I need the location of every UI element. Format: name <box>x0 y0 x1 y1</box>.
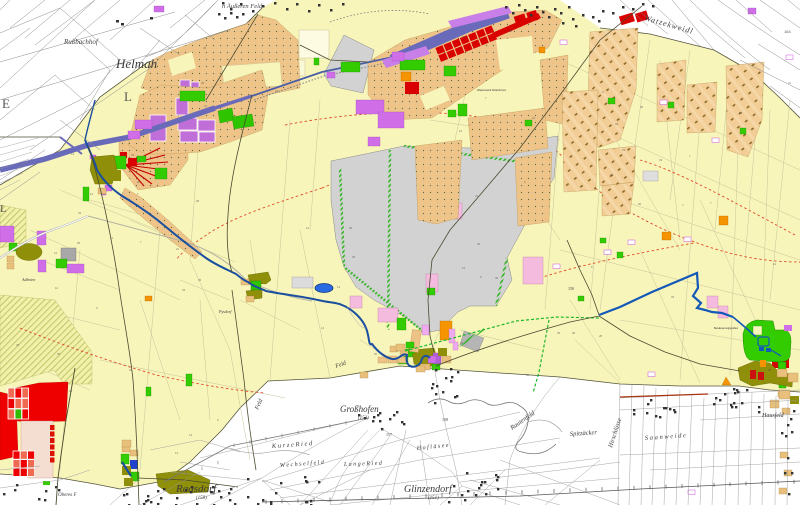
svg-text:21: 21 <box>459 129 463 133</box>
svg-text:35: 35 <box>638 202 642 206</box>
svg-text:Bewässerungsgraben: Bewässerungsgraben <box>714 327 739 330</box>
svg-text:28: 28 <box>599 334 603 338</box>
svg-text:(152): (152) <box>358 416 369 421</box>
svg-text:Raasdorf: Raasdorf <box>175 483 218 495</box>
svg-text:12: 12 <box>773 262 777 266</box>
svg-text:33: 33 <box>659 158 663 162</box>
svg-text:28: 28 <box>509 29 513 33</box>
svg-text:14: 14 <box>71 152 75 156</box>
svg-text:35: 35 <box>201 81 205 85</box>
svg-text:14: 14 <box>275 89 279 93</box>
svg-text:35: 35 <box>77 241 81 245</box>
svg-text:L: L <box>124 89 132 104</box>
svg-text:35: 35 <box>477 242 481 246</box>
svg-text:33: 33 <box>129 368 133 372</box>
svg-text:35: 35 <box>374 352 378 356</box>
svg-text:14: 14 <box>739 111 743 115</box>
svg-text:33: 33 <box>203 46 207 50</box>
svg-text:14: 14 <box>175 451 179 455</box>
svg-text:33: 33 <box>615 122 619 126</box>
svg-text:14: 14 <box>462 266 466 270</box>
svg-text:E: E <box>2 96 10 111</box>
svg-text:Pysdorf: Pysdorf <box>218 309 232 314</box>
svg-text:35: 35 <box>57 352 61 356</box>
svg-text:12: 12 <box>55 286 59 290</box>
svg-text:21: 21 <box>622 148 626 152</box>
svg-text:Wasserwerk Süßenbrunn: Wasserwerk Süßenbrunn <box>477 88 507 92</box>
svg-text:Helmah: Helmah <box>115 56 157 71</box>
svg-text:35: 35 <box>526 373 530 377</box>
svg-text:14: 14 <box>337 285 341 289</box>
svg-text:21: 21 <box>176 247 180 251</box>
svg-text:12: 12 <box>110 236 114 240</box>
svg-text:14: 14 <box>306 226 310 230</box>
svg-text:28: 28 <box>572 331 576 335</box>
svg-text:L: L <box>0 203 7 215</box>
svg-text:35: 35 <box>198 278 202 282</box>
svg-text:(151): (151) <box>428 496 439 501</box>
svg-text:14: 14 <box>90 192 94 196</box>
svg-text:35: 35 <box>640 105 644 109</box>
svg-text:Rußbachhof: Rußbachhof <box>63 38 99 46</box>
svg-text:35: 35 <box>69 389 73 393</box>
svg-text:150: 150 <box>568 286 574 291</box>
svg-text:33: 33 <box>131 153 135 157</box>
svg-text:Hausfeld: Hausfeld <box>761 412 785 419</box>
svg-text:12: 12 <box>532 116 536 120</box>
svg-text:33: 33 <box>671 295 675 299</box>
svg-text:Oberes F: Oberes F <box>58 493 78 498</box>
svg-text:33: 33 <box>182 288 186 292</box>
svg-text:21: 21 <box>475 194 479 198</box>
svg-text:14: 14 <box>321 326 325 330</box>
svg-text:33: 33 <box>16 343 20 347</box>
svg-text:164: 164 <box>784 29 791 34</box>
svg-text:14: 14 <box>189 433 193 437</box>
svg-text:158: 158 <box>442 417 448 422</box>
svg-text:28: 28 <box>196 199 200 203</box>
svg-text:35: 35 <box>495 276 499 280</box>
svg-text:35: 35 <box>462 35 466 39</box>
svg-text:33: 33 <box>460 341 464 345</box>
svg-text:21: 21 <box>204 104 208 108</box>
svg-text:35: 35 <box>768 368 772 372</box>
svg-text:35: 35 <box>352 255 356 259</box>
svg-text:28: 28 <box>349 226 353 230</box>
svg-text:28: 28 <box>610 173 614 177</box>
svg-text:(158): (158) <box>196 496 207 501</box>
svg-text:157: 157 <box>386 432 392 437</box>
svg-text:Adletten: Adletten <box>21 277 35 282</box>
svg-text:35: 35 <box>557 331 561 335</box>
svg-text:12: 12 <box>54 251 58 255</box>
svg-text:33: 33 <box>78 211 82 215</box>
svg-text:Glinzendorf: Glinzendorf <box>404 484 453 495</box>
svg-text:Großhofen: Großhofen <box>340 404 379 414</box>
svg-text:28: 28 <box>137 180 141 184</box>
